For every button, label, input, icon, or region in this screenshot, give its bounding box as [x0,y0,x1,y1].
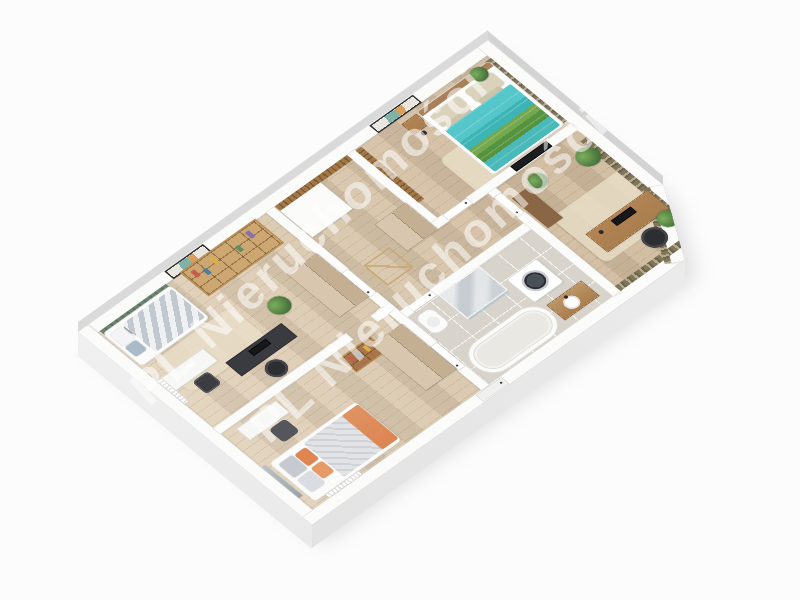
floorplan-render: PL Nieruchomości PL Nieruchomości [0,0,800,600]
washer-door [520,269,551,293]
door-handle [499,381,503,384]
door-handle [428,294,432,297]
toilet-bowl [424,314,443,329]
door-handle [455,364,459,367]
door-handle [464,202,468,205]
door-handle [366,291,370,294]
door-handle [515,211,519,214]
